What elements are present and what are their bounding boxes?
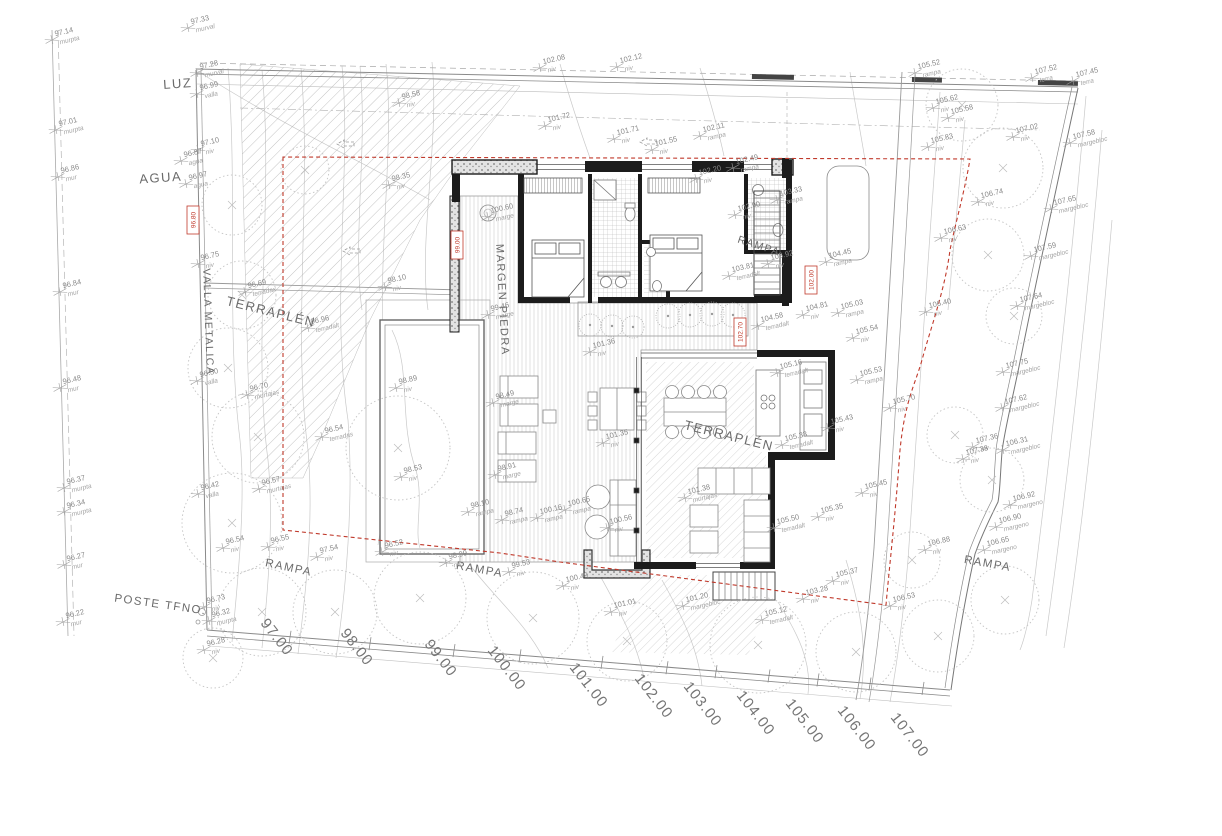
svg-text:106.74: 106.74	[980, 186, 1004, 200]
site-plan-drawing: 96.8099.00102.70102.00 97.14murpta97.01m…	[0, 0, 1222, 836]
site-plan-canvas: 96.8099.00102.70102.00 97.14murpta97.01m…	[0, 0, 1222, 836]
svg-text:niv: niv	[547, 65, 557, 74]
svg-text:102.08: 102.08	[542, 52, 566, 66]
svg-text:96.22: 96.22	[65, 607, 85, 620]
svg-text:niv: niv	[970, 456, 980, 465]
svg-text:105.54: 105.54	[855, 322, 879, 336]
svg-text:niv: niv	[618, 609, 628, 618]
svg-text:96.84: 96.84	[62, 277, 82, 290]
road-tick	[922, 682, 924, 695]
svg-text:96.55: 96.55	[270, 532, 290, 545]
svg-text:niv: niv	[659, 147, 669, 156]
survey-point: 105.83niv	[919, 131, 956, 156]
survey-point: 104.45rampa	[817, 246, 854, 271]
svg-text:105.83: 105.83	[930, 131, 954, 145]
svg-text:valla: valla	[204, 377, 219, 387]
svg-text:101.71: 101.71	[616, 123, 640, 137]
svg-text:mur: mur	[67, 385, 80, 395]
red-elevation-marker: 102.00	[805, 266, 817, 294]
survey-point: 96.34murpta	[55, 496, 93, 521]
svg-text:niv: niv	[825, 514, 835, 523]
svg-text:niv: niv	[932, 547, 942, 556]
svg-text:mur: mur	[71, 562, 84, 572]
svg-text:96.48: 96.48	[62, 373, 82, 386]
road-tick	[666, 661, 668, 674]
svg-text:102.70: 102.70	[738, 322, 745, 342]
survey-point: 107.58margebloc	[1061, 125, 1109, 153]
svg-text:niv: niv	[810, 596, 820, 605]
svg-text:agua: agua	[193, 180, 209, 190]
svg-text:100.49: 100.49	[565, 570, 589, 584]
svg-text:niv: niv	[985, 199, 995, 208]
svg-text:mur: mur	[70, 619, 83, 629]
pool-outer	[380, 320, 484, 554]
svg-text:102.12: 102.12	[619, 51, 643, 65]
wardrobe	[524, 178, 582, 193]
outdoor-dining	[588, 388, 646, 430]
survey-point: 96.86mur	[49, 162, 82, 186]
road-tick	[869, 678, 871, 691]
svg-text:niv: niv	[230, 545, 240, 554]
svg-text:105.62: 105.62	[935, 92, 959, 106]
survey-point: 106.63niv	[932, 222, 969, 247]
survey-point: 105.54niv	[844, 322, 881, 347]
survey-point: 97.14murpta	[43, 24, 81, 49]
svg-text:106.88: 106.88	[927, 534, 951, 548]
svg-text:niv: niv	[392, 284, 402, 293]
svg-text:96.80: 96.80	[191, 211, 198, 228]
tree	[971, 566, 1039, 634]
survey-point: 107.65margebloc	[1042, 191, 1090, 219]
survey-point: 107.02niv	[1004, 121, 1041, 146]
svg-text:niv: niv	[621, 136, 631, 145]
survey-point: 107.75margebloc	[994, 354, 1042, 382]
survey-point: 96.84mur	[51, 277, 84, 301]
svg-text:97.10: 97.10	[200, 135, 220, 148]
street-elevation-label: 107.00	[887, 710, 932, 761]
street-elevation-label: 103.00	[680, 679, 725, 730]
svg-text:niv: niv	[869, 490, 879, 499]
road-tick	[817, 673, 819, 686]
svg-text:niv: niv	[205, 147, 215, 156]
tree	[963, 128, 1043, 208]
survey-point: 105.70niv	[881, 392, 918, 417]
street-elevations-layer: 97.0098.0099.00100.00101.00102.00103.001…	[257, 615, 932, 761]
svg-text:97.54: 97.54	[319, 542, 339, 555]
svg-text:107.38: 107.38	[965, 443, 989, 457]
svg-text:96.28: 96.28	[206, 635, 226, 648]
survey-point: 105.45niv	[853, 477, 890, 502]
survey-point: 105.53rampa	[848, 364, 885, 389]
survey-point: 100.49niv	[554, 570, 591, 595]
survey-point: 96.55niv	[259, 532, 292, 556]
street-elevation-label: 104.00	[733, 688, 778, 739]
street-elevation-label: 99.00	[421, 636, 461, 680]
south-stairs	[713, 572, 775, 600]
svg-text:niv: niv	[570, 583, 580, 592]
svg-text:niv: niv	[933, 309, 943, 318]
street-elevation-label: 100.00	[484, 643, 529, 694]
street-elevation-label: 105.00	[782, 696, 827, 747]
survey-point: 97.28murval	[188, 57, 225, 82]
svg-text:niv: niv	[275, 544, 285, 553]
survey-point: 105.37niv	[824, 565, 861, 590]
survey-point: 96.54niv	[214, 533, 247, 557]
svg-text:96.86: 96.86	[60, 162, 80, 175]
plan-label: LUZ	[163, 75, 193, 92]
svg-text:rampa: rampa	[833, 257, 853, 268]
svg-text:102.00: 102.00	[809, 270, 816, 290]
survey-point: 101.71niv	[605, 123, 642, 148]
survey-point: 107.38niv	[954, 443, 991, 468]
svg-text:niv: niv	[516, 569, 526, 578]
svg-text:niv: niv	[935, 144, 945, 153]
survey-point: 105.35niv	[809, 501, 846, 526]
survey-point: 103.81terradalt	[720, 259, 762, 285]
svg-text:107.45: 107.45	[1075, 65, 1099, 79]
survey-point: 106.90margeno	[987, 510, 1030, 537]
road-tick	[601, 656, 603, 669]
svg-text:agua: agua	[188, 157, 204, 167]
street-elevation-label: 102.00	[631, 671, 676, 722]
plan-label: POSTE TFNO.	[114, 593, 208, 618]
wardrobe	[648, 178, 700, 193]
tree	[374, 552, 466, 644]
plan-label: RAMPA	[264, 557, 313, 579]
svg-text:105.35: 105.35	[820, 501, 844, 515]
svg-text:niv: niv	[860, 335, 870, 344]
svg-text:105.70: 105.70	[892, 392, 916, 406]
red-elevation-marker: 96.80	[187, 206, 199, 234]
svg-text:niv: niv	[552, 123, 562, 132]
survey-point: 97.33murval	[179, 12, 216, 37]
road-tick	[715, 665, 717, 678]
red-elevation-marker: 102.70	[734, 318, 746, 346]
svg-text:101.55: 101.55	[654, 134, 678, 148]
svg-text:niv: niv	[211, 647, 221, 656]
road-tick	[768, 669, 770, 682]
svg-text:105.45: 105.45	[864, 477, 888, 491]
svg-text:niv: niv	[324, 554, 334, 563]
svg-text:niv: niv	[840, 578, 850, 587]
svg-text:96.75: 96.75	[200, 249, 220, 262]
svg-text:105.37: 105.37	[835, 565, 859, 579]
svg-text:niv: niv	[810, 312, 820, 321]
svg-text:103.28: 103.28	[805, 583, 829, 597]
survey-point: 103.28niv	[794, 583, 831, 608]
survey-point: 104.81niv	[794, 299, 831, 324]
svg-text:96.54: 96.54	[225, 533, 245, 546]
survey-point: 97.54niv	[308, 542, 341, 566]
svg-text:99.00: 99.00	[455, 236, 462, 253]
survey-point: 105.03rampa	[829, 297, 866, 322]
svg-text:rampa: rampa	[864, 375, 884, 386]
svg-text:niv: niv	[955, 115, 965, 124]
survey-point: 101.55niv	[643, 134, 680, 159]
road-tick	[453, 644, 455, 657]
svg-text:niv: niv	[835, 425, 845, 434]
svg-text:niv: niv	[703, 176, 713, 185]
survey-point: 107.59margebloc	[1022, 238, 1070, 266]
svg-text:105.58: 105.58	[950, 102, 974, 116]
svg-text:niv: niv	[1020, 134, 1030, 143]
survey-point: 107.62margebloc	[993, 390, 1041, 418]
svg-text:mur: mur	[67, 289, 80, 299]
survey-point: 97.01murpta	[47, 114, 85, 139]
survey-point: 96.99valla	[188, 79, 221, 103]
survey-point: 106.92margeno	[1001, 488, 1044, 515]
svg-text:101.72: 101.72	[547, 110, 571, 124]
svg-text:valla: valla	[205, 490, 220, 500]
plan-label: VALLA METALICA	[200, 268, 216, 375]
svg-text:96.73: 96.73	[206, 592, 226, 605]
survey-point: 102.12niv	[608, 51, 645, 76]
svg-text:mur: mur	[65, 174, 78, 184]
survey-point: 106.88niv	[916, 534, 953, 559]
road-tick	[369, 637, 371, 650]
survey-point: 96.42valla	[189, 479, 222, 503]
plan-label: AGUA	[139, 169, 183, 187]
svg-text:terra: terra	[1080, 77, 1095, 87]
survey-point: 101.72niv	[536, 110, 573, 135]
street-elevation-label: 101.00	[566, 660, 611, 711]
survey-point: 106.31margebloc	[994, 432, 1042, 460]
svg-text:valla: valla	[204, 90, 219, 100]
survey-point: 106.40niv	[917, 296, 954, 321]
survey-point: 96.22mur	[54, 607, 87, 631]
svg-text:rampa: rampa	[845, 308, 865, 319]
red-elevation-marker: 99.00	[451, 231, 463, 259]
survey-point: 96.87agua	[172, 146, 205, 170]
road-tick	[519, 649, 521, 662]
survey-point: 102.11rampa	[691, 120, 728, 145]
svg-text:niv: niv	[897, 405, 907, 414]
svg-text:niv: niv	[897, 603, 907, 612]
street-elevation-label: 106.00	[834, 703, 879, 754]
survey-point: 96.27mur	[55, 550, 88, 574]
svg-text:rampa: rampa	[707, 131, 727, 142]
svg-text:107.02: 107.02	[1015, 121, 1039, 135]
svg-text:104.81: 104.81	[805, 299, 829, 313]
survey-point: 96.37murpta	[55, 472, 93, 497]
svg-text:107.52: 107.52	[1034, 62, 1058, 76]
svg-text:96.27: 96.27	[66, 550, 86, 563]
survey-point: 107.64margebloc	[1008, 288, 1056, 316]
